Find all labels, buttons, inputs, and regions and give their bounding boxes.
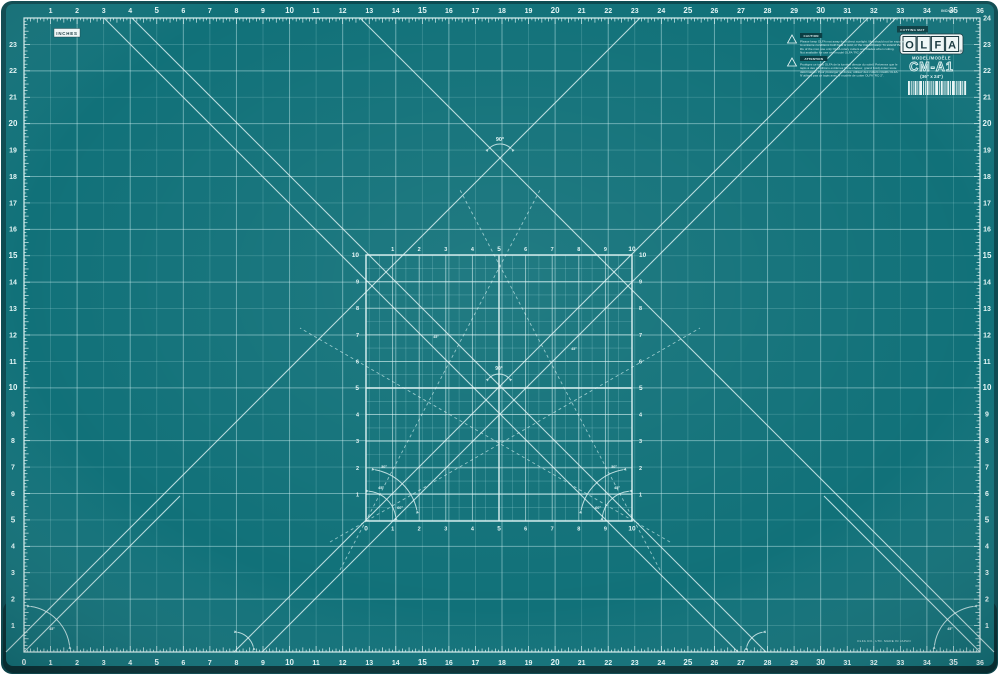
cutting-mat: 0123456789101234567891012345678910123456…: [0, 0, 1000, 676]
photo-vignette: [1, 1, 998, 674]
product-photo: 0123456789101234567891012345678910123456…: [0, 0, 1000, 676]
